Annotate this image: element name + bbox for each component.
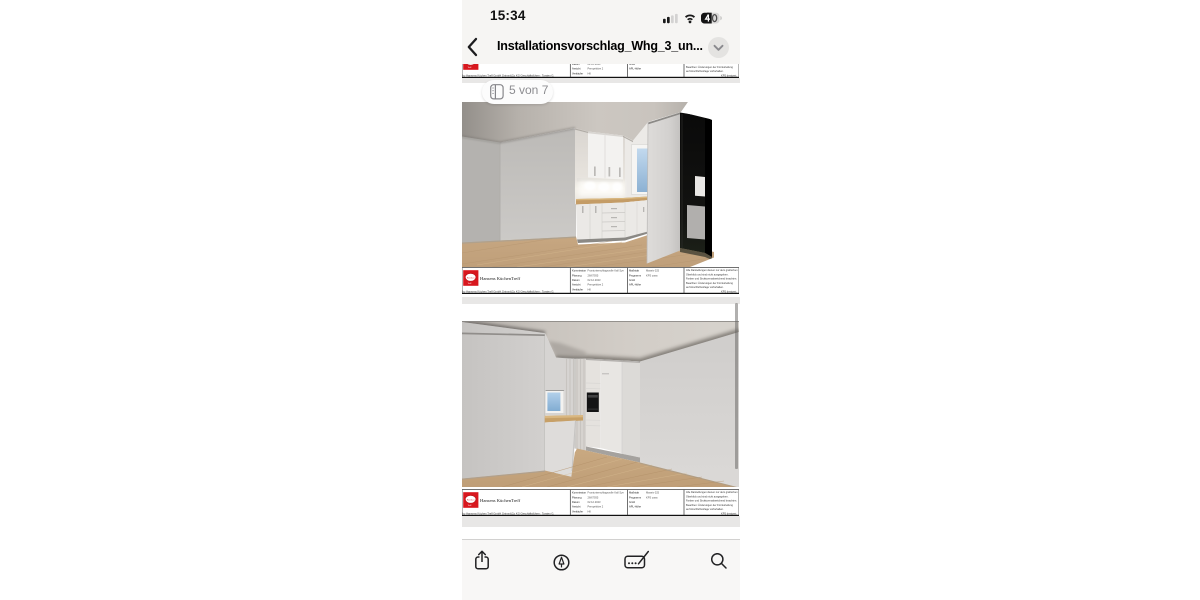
svg-text:APL-Höhe: APL-Höhe [629, 504, 642, 508]
svg-text:auf Anschlußvorlage vorbehalte: auf Anschlußvorlage vorbehalten. [686, 285, 724, 289]
svg-text:Beachten: Änderungen der Front: Beachten: Änderungen der Fronturteilung [686, 502, 733, 506]
svg-text:Perspektive 2: Perspektive 2 [588, 67, 604, 71]
svg-text:Ansicht: Ansicht [572, 67, 581, 71]
svg-text:Küchen: Küchen [467, 276, 476, 279]
svg-text:Hansens KüchenTreff: Hansens KüchenTreff [480, 64, 521, 66]
svg-text:Alle Darstellungen dienen nur: Alle Darstellungen dienen nur dem grafis… [686, 268, 738, 272]
svg-text:Hansens KüchenTreff: Hansens KüchenTreff [480, 276, 521, 281]
svg-text:Groß: Groß [629, 64, 635, 67]
svg-text:Beachten: Änderungen der Front: Beachten: Änderungen der Fronturteilung [686, 65, 733, 69]
svg-text:Farben und Strukturenabweichen: Farben und Strukturenabweichend beachten… [686, 498, 737, 502]
svg-text:HK: HK [588, 509, 592, 513]
svg-text:KPS casa: KPS casa [646, 273, 658, 277]
svg-text:02.12.2023: 02.12.2023 [588, 500, 602, 504]
svg-text:HK: HK [588, 287, 592, 291]
svg-text:Treff: Treff [468, 505, 472, 507]
svg-text:02.12.2023: 02.12.2023 [588, 278, 602, 282]
svg-text:KPS designst.: KPS designst. [721, 289, 737, 293]
svg-text:Verkäufer: Verkäufer [572, 71, 583, 75]
svg-text:Überblick und sind nicht ausge: Überblick und sind nicht ausgegeben. [686, 272, 729, 276]
svg-text:Farben und Strukturenabweichen: Farben und Strukturenabweichend beachten… [686, 64, 737, 65]
svg-text:Verkäufer: Verkäufer [572, 509, 583, 513]
svg-text:Datum: Datum [572, 500, 580, 504]
svg-text:26/67935: 26/67935 [588, 495, 599, 499]
svg-text:KPS casa: KPS casa [646, 495, 658, 499]
svg-text:Ansicht: Ansicht [572, 283, 581, 287]
svg-text:Datum: Datum [572, 278, 580, 282]
svg-text:Massiv 025: Massiv 025 [646, 269, 660, 273]
svg-text:26/67935: 26/67935 [588, 273, 599, 277]
svg-text:Kommission: Kommission [572, 490, 587, 494]
svg-text:KPS designst.: KPS designst. [721, 511, 737, 515]
svg-text:Küchen: Küchen [467, 498, 476, 501]
svg-text:Alle Darstellungen dienen nur: Alle Darstellungen dienen nur dem grafis… [686, 490, 738, 494]
svg-text:HK: HK [588, 71, 592, 75]
svg-text:Programm: Programm [629, 495, 641, 499]
svg-text:auf Anschlußvorlage vorbehalte: auf Anschlußvorlage vorbehalten. [686, 507, 724, 511]
svg-text:Treff: Treff [468, 67, 472, 69]
svg-text:Massiv 025: Massiv 025 [646, 490, 660, 494]
svg-text:Farben und Strukturenabweichen: Farben und Strukturenabweichend beachten… [686, 277, 737, 281]
svg-text:by Hansens Küchen Treff GmbH G: by Hansens Küchen Treff GmbH Grimm&Co KG… [463, 289, 555, 293]
svg-text:Datum: Datum [572, 64, 580, 67]
svg-text:by Hansens Küchen Treff GmbH G: by Hansens Küchen Treff GmbH Grimm&Co KG… [463, 511, 555, 515]
svg-text:Perspektive 2: Perspektive 2 [588, 504, 604, 508]
svg-text:Maßstab: Maßstab [629, 269, 640, 273]
svg-text:auf Anschlußvorlage vorbehalte: auf Anschlußvorlage vorbehalten. [686, 69, 724, 73]
svg-text:Ansicht: Ansicht [572, 504, 581, 508]
svg-text:Maßstab: Maßstab [629, 490, 640, 494]
svg-text:Frontunterschlagsvolle Kall Sy: Frontunterschlagsvolle Kall Syn [588, 490, 625, 494]
svg-text:Beachten: Änderungen der Front: Beachten: Änderungen der Fronturteilung [686, 281, 733, 285]
svg-text:Planung: Planung [572, 495, 582, 499]
svg-text:APL-Höhe: APL-Höhe [629, 67, 642, 71]
svg-text:Treff: Treff [468, 283, 472, 285]
svg-text:Groß: Groß [629, 278, 635, 282]
svg-text:APL-Höhe: APL-Höhe [629, 283, 642, 287]
svg-text:Kommission: Kommission [572, 269, 587, 273]
svg-text:Hansens KüchenTreff: Hansens KüchenTreff [480, 498, 521, 503]
svg-text:Frontunterschlagsvolle Kall Sy: Frontunterschlagsvolle Kall Syn [588, 269, 625, 273]
svg-text:Verkäufer: Verkäufer [572, 287, 583, 291]
svg-text:Überblick und sind nicht ausge: Überblick und sind nicht ausgegeben. [686, 494, 729, 498]
svg-text:02.12.2023: 02.12.2023 [588, 64, 602, 67]
svg-text:Planung: Planung [572, 273, 582, 277]
svg-text:Perspektive 2: Perspektive 2 [588, 283, 604, 287]
svg-text:Groß: Groß [629, 500, 635, 504]
svg-text:Programm: Programm [629, 273, 641, 277]
